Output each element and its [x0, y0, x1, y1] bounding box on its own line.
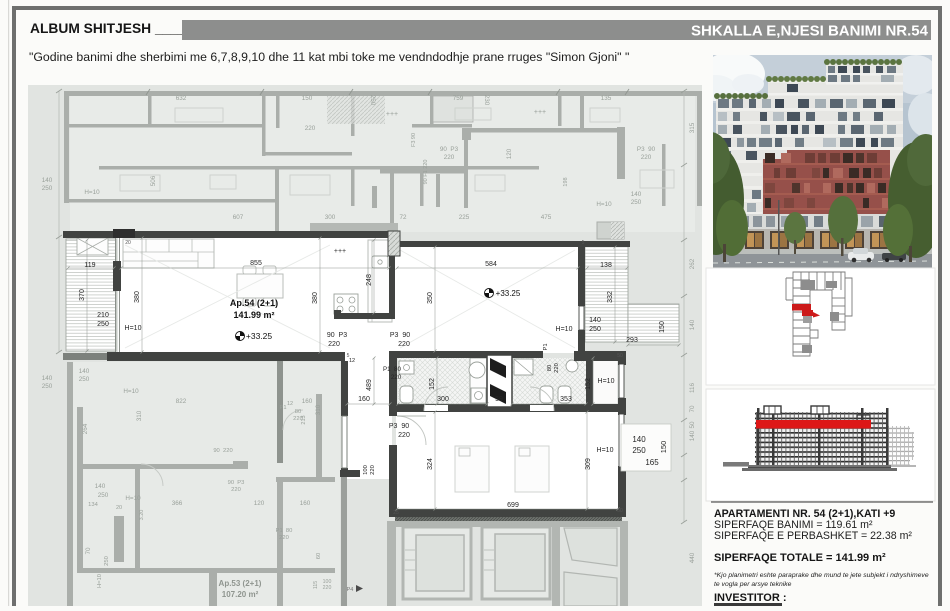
svg-text:+++: +++	[386, 111, 398, 118]
svg-text:12: 12	[349, 358, 355, 364]
svg-text:250: 250	[98, 492, 109, 499]
svg-text:489: 489	[366, 379, 373, 391]
svg-text:310: 310	[315, 404, 322, 415]
svg-text:H=10: H=10	[125, 495, 141, 502]
svg-text:5: 5	[347, 353, 350, 359]
svg-text:380: 380	[134, 291, 141, 303]
svg-text:220: 220	[305, 125, 316, 132]
svg-text:584: 584	[485, 261, 497, 268]
svg-text:SIPERFAQE TOTALE = 141.99 m²: SIPERFAQE TOTALE = 141.99 m²	[714, 552, 886, 564]
svg-text:198: 198	[563, 177, 569, 186]
svg-text:116: 116	[689, 382, 696, 393]
svg-text:150: 150	[659, 321, 666, 333]
svg-text:506: 506	[150, 175, 157, 186]
svg-text:380: 380	[312, 292, 319, 304]
svg-text:3.20: 3.20	[139, 510, 145, 521]
svg-text:90 P3: 90 P3	[440, 146, 459, 153]
svg-text:100: 100	[363, 465, 369, 475]
svg-text:115: 115	[313, 581, 319, 589]
svg-text:632: 632	[176, 95, 187, 102]
svg-text:210: 210	[97, 312, 109, 319]
svg-text:152: 152	[429, 378, 436, 390]
svg-text:699: 699	[507, 502, 519, 509]
svg-text:150: 150	[659, 441, 668, 454]
svg-text:220: 220	[391, 374, 402, 381]
svg-text:134: 134	[88, 502, 98, 508]
svg-text:332: 332	[607, 291, 614, 303]
svg-text:H=10: H=10	[84, 189, 100, 196]
svg-text:822: 822	[176, 398, 187, 405]
svg-text:140: 140	[631, 191, 642, 198]
svg-text:SIPERFAQE E PERBASHKET = 22.38: SIPERFAQE E PERBASHKET = 22.38 m²	[714, 530, 912, 542]
svg-text:119: 119	[84, 262, 95, 269]
svg-text:120: 120	[254, 500, 265, 507]
svg-text:300: 300	[437, 396, 449, 403]
svg-text:138: 138	[600, 262, 612, 269]
svg-text:310: 310	[136, 410, 143, 421]
svg-text:+33.25: +33.25	[246, 331, 273, 341]
svg-text:759: 759	[453, 95, 464, 102]
svg-text:*Kjo planimetri eshte paraprak: *Kjo planimetri eshte paraprake dhe mund…	[714, 572, 929, 579]
svg-text:SHKALLA E,NJESI BANIMI NR.54: SHKALLA E,NJESI BANIMI NR.54	[691, 23, 929, 40]
svg-text:220: 220	[279, 535, 289, 541]
svg-text:F3 90: F3 90	[411, 133, 417, 147]
svg-text:20: 20	[116, 505, 122, 511]
svg-text:293: 293	[626, 337, 638, 344]
svg-text:607: 607	[233, 214, 244, 221]
svg-text:140: 140	[42, 375, 53, 382]
svg-text:107.20 m²: 107.20 m²	[222, 590, 259, 599]
svg-text:P4: P4	[347, 587, 354, 593]
svg-text:150: 150	[302, 95, 313, 102]
svg-text:72: 72	[399, 214, 407, 221]
svg-text:160: 160	[300, 500, 311, 507]
svg-text:315: 315	[689, 122, 696, 133]
svg-text:250: 250	[42, 383, 53, 390]
svg-text:248: 248	[366, 274, 373, 286]
svg-text:262: 262	[689, 258, 696, 269]
svg-text:+++: +++	[534, 109, 546, 116]
svg-text:25: 25	[393, 510, 399, 516]
svg-text:135: 135	[601, 95, 612, 102]
svg-text:50: 50	[617, 353, 623, 359]
svg-text:353: 353	[560, 396, 572, 403]
svg-text:5: 5	[582, 240, 585, 246]
svg-text:300: 300	[325, 214, 336, 221]
svg-text:220: 220	[641, 154, 652, 161]
svg-text:250: 250	[632, 446, 646, 455]
svg-text:ALBUM SHITJESH ____: ALBUM SHITJESH ____	[30, 21, 186, 36]
svg-text:50: 50	[617, 508, 623, 514]
svg-text:Ap.53 (2+1): Ap.53 (2+1)	[219, 579, 262, 588]
svg-text:250: 250	[97, 321, 109, 328]
svg-text:70: 70	[85, 547, 92, 555]
svg-text:80: 80	[295, 409, 301, 415]
svg-text:220: 220	[328, 341, 340, 348]
svg-text:230: 230	[483, 95, 490, 106]
svg-text:50: 50	[689, 421, 696, 429]
svg-text:140: 140	[689, 430, 696, 441]
svg-text:220: 220	[554, 363, 560, 373]
svg-text:H=10: H=10	[596, 201, 612, 208]
svg-text:220: 220	[231, 487, 241, 493]
svg-text:Ap.54 (2+1): Ap.54 (2+1)	[230, 298, 278, 308]
svg-text:220: 220	[323, 585, 332, 591]
svg-text:160: 160	[302, 398, 313, 405]
svg-text:152: 152	[585, 378, 592, 390]
svg-text:370: 370	[79, 289, 86, 301]
svg-text:225: 225	[459, 214, 470, 221]
svg-text:H=10: H=10	[597, 447, 614, 454]
svg-text:H=10: H=10	[556, 326, 573, 333]
svg-text:P1: P1	[279, 405, 286, 411]
svg-text:P3 90: P3 90	[389, 423, 409, 430]
svg-text:120: 120	[506, 148, 513, 159]
svg-text:80: 80	[547, 365, 553, 371]
svg-text:INVESTITOR :: INVESTITOR :	[714, 592, 787, 604]
svg-text:350: 350	[427, 292, 434, 304]
svg-text:140: 140	[589, 317, 601, 324]
svg-text:250: 250	[42, 185, 53, 192]
svg-text:"Godine banimi dhe sherbimi me: "Godine banimi dhe sherbimi me 6,7,8,9,1…	[29, 50, 629, 64]
svg-text:90 P3: 90 P3	[228, 480, 245, 486]
svg-text:90 F1 220: 90 F1 220	[423, 160, 429, 185]
svg-text:140: 140	[95, 483, 106, 490]
svg-text:220: 220	[398, 432, 410, 439]
svg-text:H=10: H=10	[97, 574, 103, 588]
svg-text:250: 250	[104, 556, 110, 566]
svg-text:220: 220	[444, 154, 455, 161]
svg-text:P3 90: P3 90	[390, 332, 410, 339]
svg-text:250: 250	[369, 95, 376, 106]
svg-text:324: 324	[427, 458, 434, 470]
svg-text:250: 250	[589, 326, 601, 333]
svg-text:220: 220	[370, 465, 376, 475]
svg-text:366: 366	[172, 500, 183, 507]
svg-text:P3 90: P3 90	[637, 146, 656, 153]
svg-text:140: 140	[689, 319, 696, 330]
svg-text:P1: P1	[543, 343, 549, 350]
svg-text:309: 309	[585, 458, 592, 470]
svg-text:70: 70	[689, 405, 696, 413]
svg-text:20: 20	[125, 240, 131, 246]
svg-text:60: 60	[316, 553, 322, 559]
svg-text:+33.25: +33.25	[496, 289, 521, 298]
svg-text:220: 220	[398, 341, 410, 348]
svg-text:H=10: H=10	[598, 378, 615, 385]
svg-text:855: 855	[250, 260, 262, 267]
svg-text:250: 250	[631, 199, 642, 206]
svg-text:213: 213	[301, 415, 307, 424]
svg-text:140: 140	[632, 435, 646, 444]
svg-text:140: 140	[79, 368, 90, 375]
svg-text:+++: +++	[334, 248, 346, 255]
svg-text:165: 165	[645, 458, 659, 467]
svg-text:P1 80: P1 80	[383, 366, 401, 373]
svg-text:H=10: H=10	[125, 325, 142, 332]
svg-text:H=10: H=10	[123, 388, 139, 395]
svg-text:475: 475	[541, 214, 552, 221]
svg-text:140: 140	[42, 177, 53, 184]
svg-text:te vogla per arsye teknike: te vogla per arsye teknike	[714, 581, 792, 588]
svg-text:264: 264	[82, 423, 89, 434]
svg-text:141.99 m²: 141.99 m²	[233, 310, 274, 320]
svg-text:250: 250	[79, 376, 90, 383]
svg-text:160: 160	[358, 396, 370, 403]
svg-text:12: 12	[287, 401, 293, 407]
svg-text:P1 80: P1 80	[276, 528, 293, 534]
svg-text:90 220: 90 220	[213, 448, 232, 454]
svg-text:90 P3: 90 P3	[327, 332, 347, 339]
svg-text:59: 59	[495, 396, 503, 403]
svg-text:440: 440	[689, 552, 696, 563]
